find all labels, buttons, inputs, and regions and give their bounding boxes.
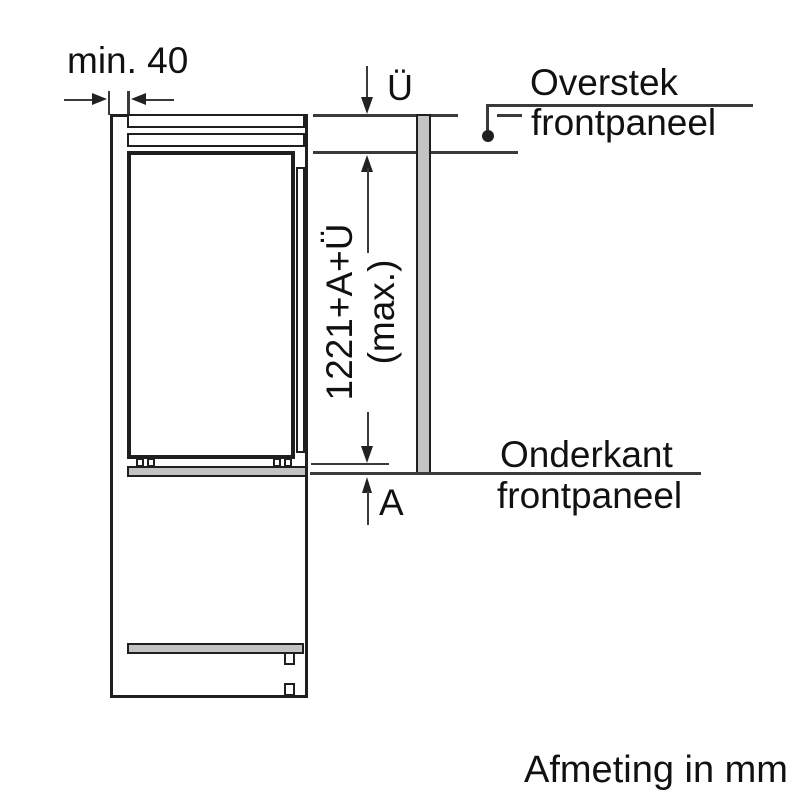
appliance-door: [127, 151, 295, 459]
overstek-label-line2: frontpaneel: [531, 104, 716, 141]
door-hinge-strip: [296, 167, 305, 453]
units-note: Afmeting in mm: [524, 751, 788, 789]
arrow-left-icon: [131, 93, 146, 105]
min-clearance-arrow-left-shaft: [64, 99, 92, 101]
ventilation-slat-bottom: [127, 133, 305, 147]
bottom-gap-arrow-shaft: [367, 491, 369, 525]
overhang-symbol-label: Ü: [387, 70, 413, 106]
height-dimension-shaft-bottom: [367, 412, 369, 448]
min-clearance-tick-left: [108, 91, 110, 115]
min-clearance-arrow-right-shaft: [146, 99, 174, 101]
arrow-down-icon: [361, 446, 373, 463]
onderkant-label-line2: frontpaneel: [497, 477, 682, 514]
callout-dot-icon: [482, 130, 494, 142]
overstek-callout-leader-vertical: [486, 104, 489, 133]
arrow-down-icon: [361, 97, 373, 114]
front-panel: [416, 114, 431, 474]
adjustable-foot-upper: [284, 652, 295, 665]
onderkant-label-line1: Onderkant: [500, 436, 673, 473]
base-shelf: [127, 466, 307, 477]
top-edge-reference-line: [313, 114, 458, 117]
adjustable-foot-lower: [284, 683, 295, 696]
top-edge-reference-line-right: [497, 114, 522, 117]
min-clearance-label: min. 40: [67, 42, 188, 79]
height-dimension-note: (max.): [361, 202, 403, 422]
arrow-right-icon: [92, 93, 107, 105]
ventilation-slat-top: [127, 114, 305, 128]
overhang-arrow-shaft: [366, 66, 368, 99]
installation-diagram: min. 40 Ü Overstek frontpaneel 1221+A+Ü …: [0, 0, 800, 800]
height-dimension-label: 1221+A+Ü (max.): [319, 202, 403, 422]
appliance-bottom-tick-line: [311, 463, 389, 465]
bottom-gap-symbol-label: A: [379, 484, 404, 521]
overstek-label-line1: Overstek: [530, 64, 678, 101]
height-dimension-formula: 1221+A+Ü: [319, 202, 361, 422]
plinth-shelf: [127, 643, 304, 654]
